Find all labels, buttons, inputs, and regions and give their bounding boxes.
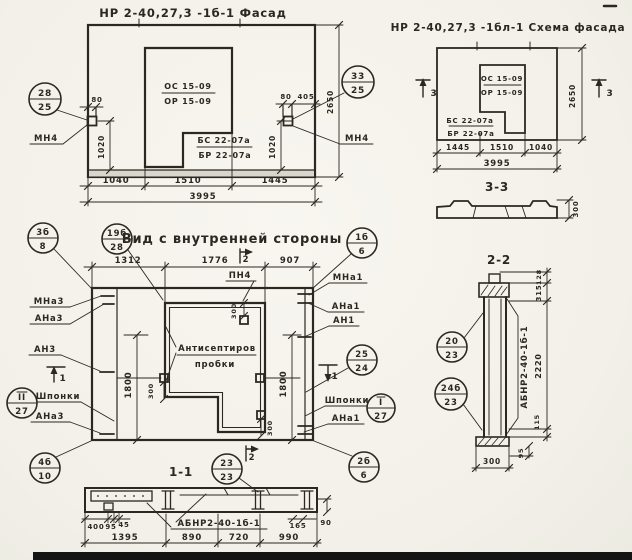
section-2-2-profile xyxy=(484,297,506,437)
facade-title: НР 2-40,27,3 -1б-1 Фасад xyxy=(99,6,286,20)
svg-text:3: 3 xyxy=(430,89,437,99)
svg-text:Шпонки: Шпонки xyxy=(325,396,370,406)
svg-text:1510: 1510 xyxy=(490,143,514,152)
schema-dims-bottom: 1445 1510 1040 3995 xyxy=(433,133,561,173)
facade-dim-80-left: 80 xyxy=(80,96,103,116)
facade-window-opening xyxy=(145,48,232,167)
svg-text:МН4: МН4 xyxy=(345,134,369,144)
svg-text:МН4: МН4 xyxy=(34,134,58,144)
svg-text:890: 890 xyxy=(182,533,202,543)
svg-text:720: 720 xyxy=(229,533,249,543)
svg-text:25: 25 xyxy=(38,103,52,113)
svg-text:ПН4: ПН4 xyxy=(229,271,252,281)
section-2-2-label: АБНР2-40-1б-1 xyxy=(506,299,530,435)
section-3-3-title: 3-3 xyxy=(485,180,509,194)
facade-block-mark-top: БС 22-07а xyxy=(198,136,251,145)
svg-text:115: 115 xyxy=(533,414,541,430)
svg-text:I: I xyxy=(379,398,383,408)
svg-text:АН3: АН3 xyxy=(34,345,56,355)
inner-section-mark-2-bottom: 2 xyxy=(246,446,259,464)
svg-text:400: 400 xyxy=(87,523,104,531)
svg-text:10: 10 xyxy=(38,472,51,482)
inner-section-mark-1-right: 1 xyxy=(319,365,339,382)
inner-dim-1800-left: 1800 xyxy=(124,332,148,444)
marker-4b-10: 4б 10 xyxy=(30,441,91,483)
marker-I-27: I 27 xyxy=(367,394,395,422)
marker-II-27: II 27 xyxy=(7,388,37,418)
facade-block-mark-bottom: БР 22-07а xyxy=(199,151,252,160)
svg-text:1800: 1800 xyxy=(279,371,289,398)
svg-text:1800: 1800 xyxy=(124,372,134,399)
section-1-1-title: 1-1 xyxy=(169,465,193,479)
inner-label-ana3-bottom: АНа3 xyxy=(31,412,100,433)
svg-text:1445: 1445 xyxy=(262,176,289,186)
svg-text:28: 28 xyxy=(110,243,123,253)
svg-text:3: 3 xyxy=(606,89,613,99)
facade-label-mn4-left: МН4 xyxy=(30,125,87,144)
svg-text:АНа3: АНа3 xyxy=(36,412,65,422)
svg-text:907: 907 xyxy=(280,256,300,266)
svg-text:1: 1 xyxy=(331,372,338,382)
section-3-3: 3-3 300 xyxy=(437,180,580,222)
svg-text:1776: 1776 xyxy=(202,256,229,266)
svg-text:II: II xyxy=(18,393,26,403)
svg-text:23: 23 xyxy=(445,351,458,361)
schema-view: НР 2-40,27,3 -1бл-1 Схема фасада ОС 15-0… xyxy=(391,22,626,222)
svg-text:1040: 1040 xyxy=(529,143,553,152)
inner-view: Вид с внутренней стороны 3б 8 19б 28 1б … xyxy=(7,223,395,483)
section-1-1: 1-1 23 23 АБНР2-40-1б-1 400 95 xyxy=(81,454,332,547)
facade-label-mn4-right: МН4 xyxy=(293,126,373,144)
inner-label-mna3: МНа3 xyxy=(30,296,101,307)
schema-section-mark-3-left: 3 xyxy=(416,78,438,99)
section-3-3-profile xyxy=(437,201,557,218)
marker-28-25: 28 25 xyxy=(29,83,87,120)
svg-text:300: 300 xyxy=(147,383,155,399)
svg-text:20: 20 xyxy=(445,337,458,347)
facade-dim-80-405-right: 80 405 xyxy=(276,93,320,116)
svg-text:1445: 1445 xyxy=(446,143,470,152)
svg-text:25: 25 xyxy=(355,350,368,360)
inner-label-shponki-right: Шпонки xyxy=(305,396,369,416)
svg-text:2220: 2220 xyxy=(534,353,543,378)
marker-24b-23: 24б 23 xyxy=(435,378,482,430)
svg-text:27: 27 xyxy=(374,412,387,422)
svg-text:3995: 3995 xyxy=(190,192,217,202)
marker-2b-6: 2б 6 xyxy=(314,441,379,482)
marker-25-24: 25 24 xyxy=(306,345,377,392)
facade-view: НР 2-40,27,3 -1б-1 Фасад ОС 15-09 ОР 15-… xyxy=(29,6,374,206)
svg-text:АБНР2-40-1б-1: АБНР2-40-1б-1 xyxy=(519,326,530,409)
svg-text:990: 990 xyxy=(279,533,299,543)
svg-text:24б: 24б xyxy=(441,383,461,394)
svg-text:25: 25 xyxy=(351,86,365,96)
inner-label-ana1: АНа1 xyxy=(308,302,364,312)
svg-text:1510: 1510 xyxy=(175,176,202,186)
schema-section-mark-3-right: 3 xyxy=(592,78,614,99)
svg-text:95: 95 xyxy=(105,523,116,531)
svg-text:90: 90 xyxy=(320,519,331,527)
svg-text:АН1: АН1 xyxy=(333,316,355,326)
svg-text:МНа3: МНа3 xyxy=(34,297,64,307)
svg-text:33: 33 xyxy=(351,72,365,82)
svg-text:1020: 1020 xyxy=(268,135,277,159)
inner-note-antiseptic-plugs: Антисептиров пробки xyxy=(166,327,256,381)
svg-text:165: 165 xyxy=(289,522,306,530)
inner-dims-top: 1312 1776 907 xyxy=(84,256,320,303)
svg-text:2: 2 xyxy=(249,453,256,463)
svg-text:6: 6 xyxy=(361,471,368,481)
svg-text:3995: 3995 xyxy=(484,159,511,169)
svg-text:2650: 2650 xyxy=(326,90,335,114)
section-2-2: 2-2 АБНР2-40-1б-1 128 315 2220 115 95 30… xyxy=(435,253,551,472)
svg-text:24: 24 xyxy=(355,364,368,374)
inner-title: Вид с внутренней стороны xyxy=(122,232,342,247)
facade-window-mark-top: ОС 15-09 xyxy=(164,82,211,91)
blueprint-sheet: НР 2-40,27,3 -1б-1 Фасад ОС 15-09 ОР 15-… xyxy=(0,0,632,560)
svg-text:19б: 19б xyxy=(107,228,127,239)
svg-text:23: 23 xyxy=(220,473,233,483)
svg-text:Шпонки: Шпонки xyxy=(36,392,81,402)
svg-text:80: 80 xyxy=(91,96,102,104)
svg-text:1312: 1312 xyxy=(115,256,142,266)
svg-text:405: 405 xyxy=(297,93,314,101)
schema-block-mark-bottom: БР 22-07а xyxy=(447,130,494,138)
facade-dim-2650: 2650 xyxy=(316,22,343,181)
schema-block-mark-top: БС 22-07а xyxy=(446,117,493,125)
svg-text:27: 27 xyxy=(15,407,28,417)
svg-text:80: 80 xyxy=(280,93,291,101)
schema-window-mark-bottom: ОР 15-09 xyxy=(481,89,523,97)
svg-text:95: 95 xyxy=(517,448,525,459)
svg-text:23: 23 xyxy=(444,398,457,408)
svg-text:23: 23 xyxy=(220,459,233,469)
svg-text:128: 128 xyxy=(535,269,543,285)
svg-text:2б: 2б xyxy=(357,456,370,467)
svg-text:2: 2 xyxy=(243,255,250,265)
svg-text:300: 300 xyxy=(266,420,274,436)
svg-text:1б: 1б xyxy=(355,232,368,243)
svg-text:1020: 1020 xyxy=(97,135,106,159)
inner-section-mark-1-left: 1 xyxy=(47,366,67,384)
inner-section-mark-2-top: 2 xyxy=(240,249,253,266)
marker-20-23: 20 23 xyxy=(437,313,483,362)
svg-text:4б: 4б xyxy=(38,457,51,468)
svg-text:АБНР2-40-1б-1: АБНР2-40-1б-1 xyxy=(178,518,261,529)
svg-text:МНа1: МНа1 xyxy=(333,273,363,283)
facade-dim-1020-left: 1020 xyxy=(97,118,114,174)
svg-text:45: 45 xyxy=(118,521,129,529)
scan-band xyxy=(33,552,632,560)
svg-text:300: 300 xyxy=(483,457,501,466)
marker-3b-8: 3б 8 xyxy=(28,223,92,289)
svg-text:1395: 1395 xyxy=(112,533,139,543)
schema-window-mark-top: ОС 15-09 xyxy=(481,75,523,83)
svg-text:28: 28 xyxy=(38,89,52,99)
section-1-1-hatch-dots xyxy=(97,495,144,497)
section-1-1-ribs xyxy=(162,491,313,509)
svg-text:8: 8 xyxy=(40,242,47,252)
section-2-2-title: 2-2 xyxy=(487,253,511,267)
svg-text:300: 300 xyxy=(230,303,238,319)
svg-text:1040: 1040 xyxy=(103,176,130,186)
facade-window-mark-bottom: ОР 15-09 xyxy=(164,97,211,106)
svg-text:АНа1: АНа1 xyxy=(332,302,361,312)
svg-text:Антисептиров: Антисептиров xyxy=(178,344,256,354)
svg-text:300: 300 xyxy=(572,200,580,217)
svg-text:АНа1: АНа1 xyxy=(332,414,361,424)
svg-text:315: 315 xyxy=(535,284,543,301)
drawing-canvas: НР 2-40,27,3 -1б-1 Фасад ОС 15-09 ОР 15-… xyxy=(0,0,632,560)
svg-text:1: 1 xyxy=(59,374,66,384)
svg-text:6: 6 xyxy=(359,247,366,257)
svg-text:3б: 3б xyxy=(36,227,49,238)
svg-text:пробки: пробки xyxy=(195,359,235,370)
inner-label-pn4: ПН4 xyxy=(226,271,256,301)
schema-dim-2650: 2650 xyxy=(557,45,586,144)
inner-dim-300-left: 300 xyxy=(147,379,168,403)
svg-text:2650: 2650 xyxy=(568,84,577,108)
schema-title: НР 2-40,27,3 -1бл-1 Схема фасада xyxy=(391,22,626,34)
svg-text:АНа3: АНа3 xyxy=(35,314,64,324)
